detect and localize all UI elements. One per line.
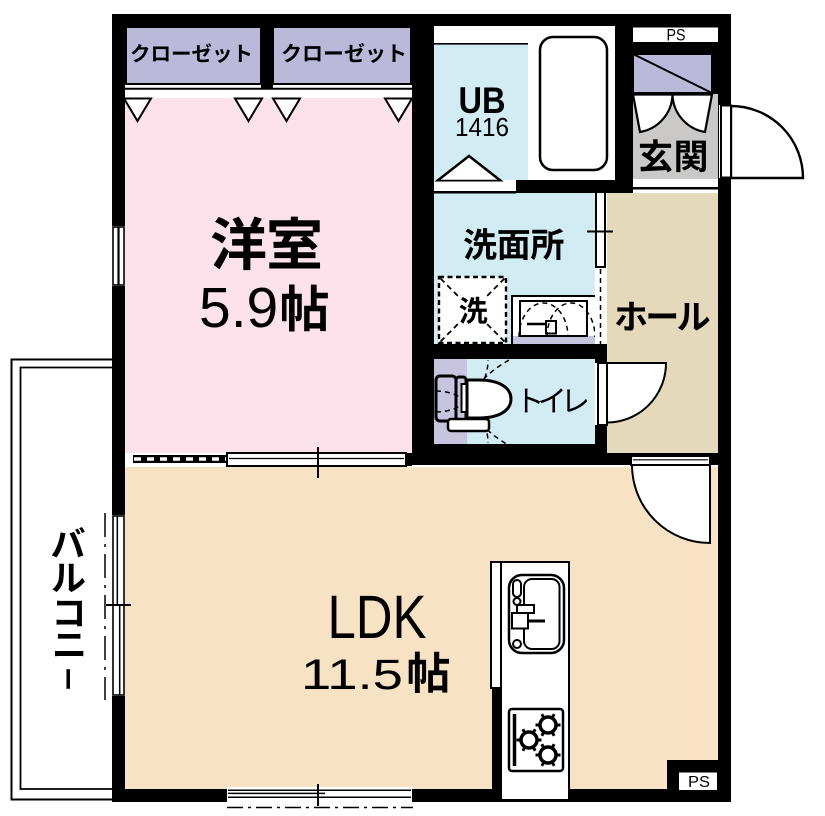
svg-text:11.5: 11.5	[301, 652, 403, 699]
svg-text:5.9: 5.9	[199, 276, 278, 340]
svg-text:LDK: LDK	[328, 583, 427, 651]
svg-text:1416: 1416	[455, 112, 509, 142]
svg-text:PS: PS	[667, 26, 686, 45]
svg-text:PS: PS	[688, 774, 710, 791]
